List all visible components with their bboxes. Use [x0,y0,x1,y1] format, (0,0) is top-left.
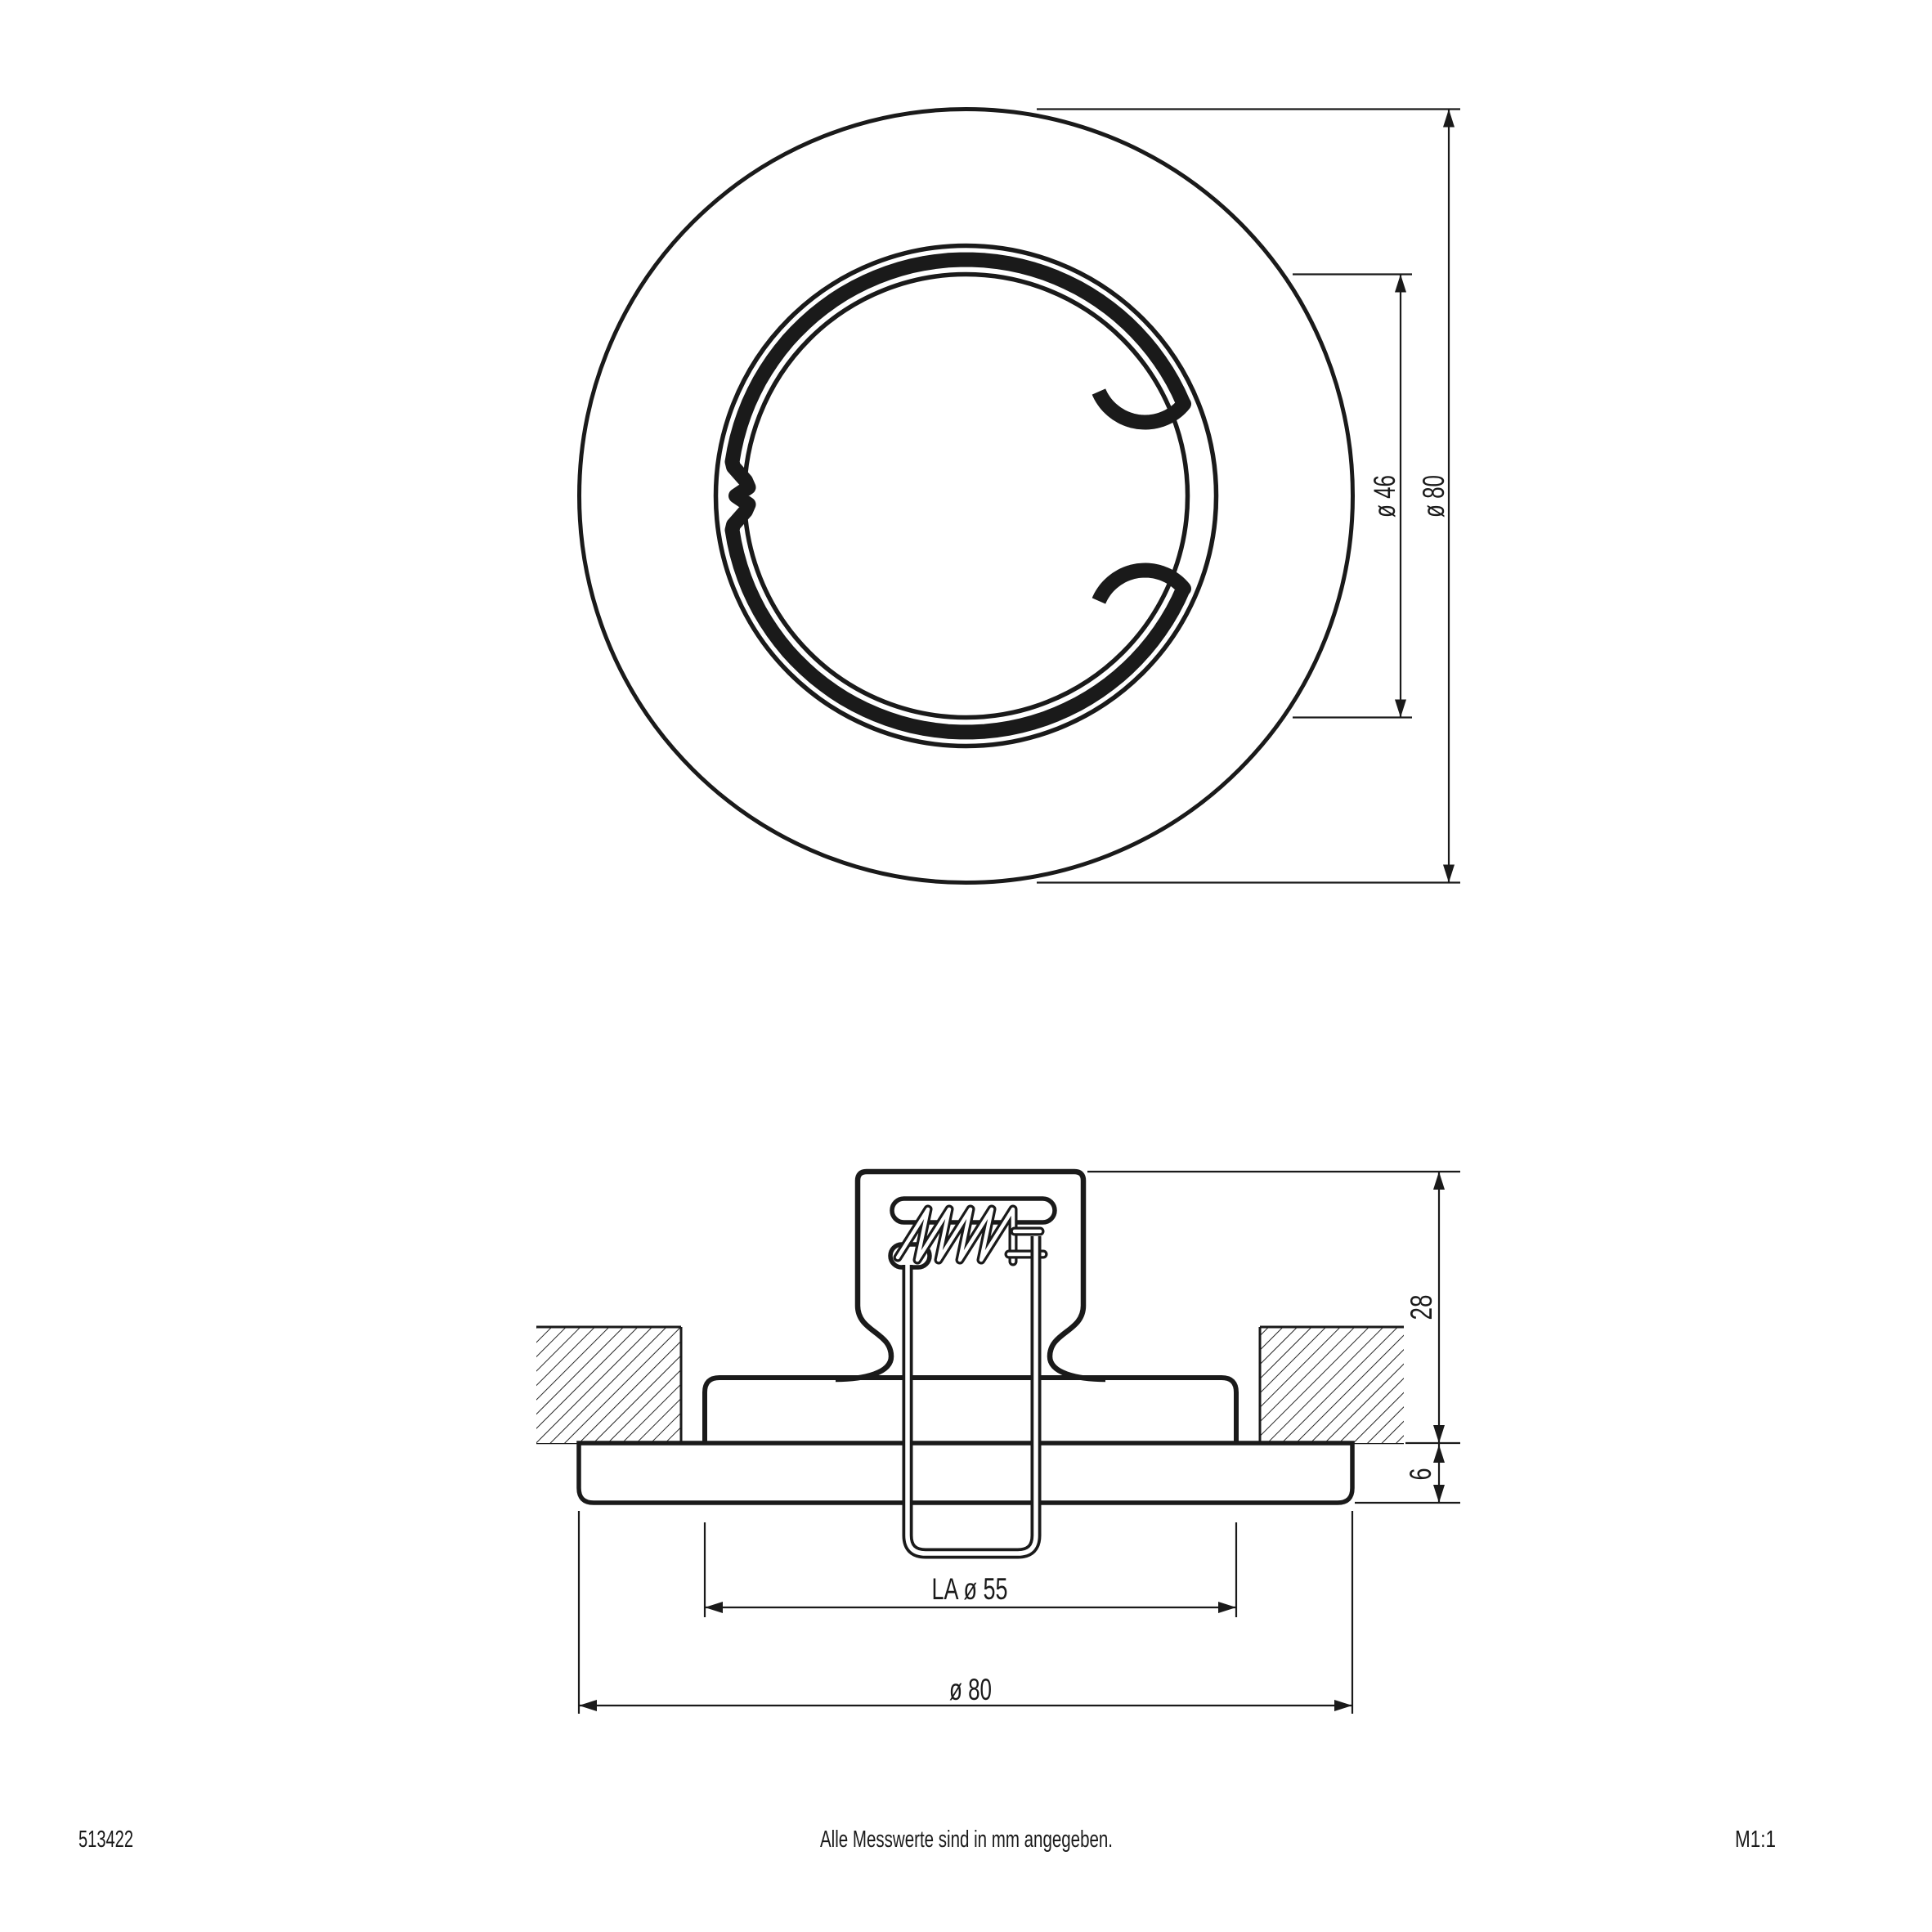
svg-text:M1:1: M1:1 [1735,1827,1776,1853]
svg-text:ø 80: ø 80 [949,1673,992,1706]
svg-text:Alle Messwerte sind in mm ange: Alle Messwerte sind in mm angegeben. [820,1827,1113,1853]
svg-text:28: 28 [1405,1295,1438,1320]
svg-text:513422: 513422 [78,1827,133,1853]
svg-text:LA ø 55: LA ø 55 [932,1572,1008,1606]
svg-text:ø 46: ø 46 [1368,475,1401,518]
svg-text:6: 6 [1404,1468,1437,1481]
svg-text:ø 80: ø 80 [1417,475,1450,518]
